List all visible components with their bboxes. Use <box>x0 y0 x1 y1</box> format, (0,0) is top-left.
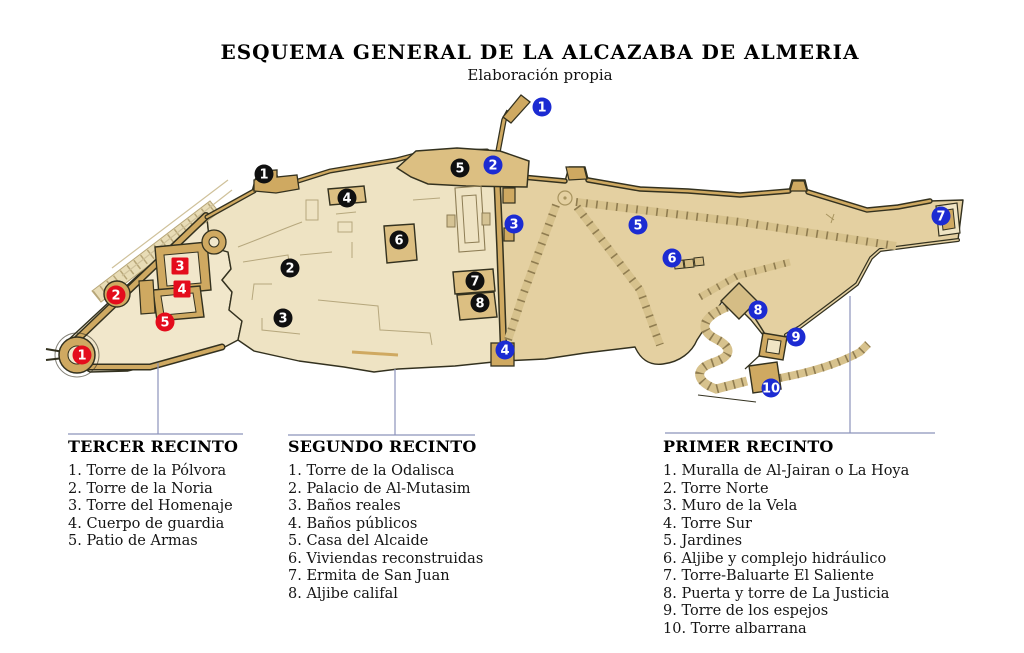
svg-text:2: 2 <box>488 159 497 174</box>
svg-text:3: 3 <box>509 218 518 233</box>
svg-text:10: 10 <box>762 382 780 397</box>
map-marker: 3 <box>274 309 293 328</box>
legend-segundo-recinto: SEGUNDO RECINTO 1. Torre de la Odalisca2… <box>288 437 548 603</box>
legend-primer-recinto: PRIMER RECINTO 1. Muralla de Al-Jairan o… <box>663 437 963 638</box>
map-marker: 3 <box>505 215 524 234</box>
legend-item: 8. Puerta y torre de La Justicia <box>663 586 963 604</box>
svg-text:1: 1 <box>77 349 86 364</box>
map-marker: 7 <box>466 272 485 291</box>
legend-segundo-items: 1. Torre de la Odalisca2. Palacio de Al-… <box>288 463 548 603</box>
map-marker: 2 <box>107 286 126 305</box>
map-primer-recinto-area <box>497 159 963 364</box>
legend-primer-items: 1. Muralla de Al-Jairan o La Hoya2. Torr… <box>663 463 963 638</box>
legend-item: 3. Muro de la Vela <box>663 498 963 516</box>
svg-text:1: 1 <box>537 101 546 116</box>
svg-text:2: 2 <box>111 289 120 304</box>
map-marker: 6 <box>390 231 409 250</box>
svg-text:4: 4 <box>342 192 351 207</box>
svg-text:4: 4 <box>177 283 186 298</box>
map-marker: 3 <box>172 258 189 275</box>
legend-primer-title: PRIMER RECINTO <box>663 437 963 456</box>
map-marker: 1 <box>255 165 274 184</box>
map-marker: 5 <box>156 313 175 332</box>
map-marker: 5 <box>629 216 648 235</box>
map-marker: 8 <box>749 301 768 320</box>
svg-text:7: 7 <box>936 210 945 225</box>
legend-item: 2. Torre Norte <box>663 481 963 499</box>
map-marker: 5 <box>451 159 470 178</box>
svg-text:5: 5 <box>455 162 464 177</box>
svg-text:5: 5 <box>633 219 642 234</box>
svg-text:6: 6 <box>667 252 676 267</box>
map-marker: 7 <box>932 207 951 226</box>
legend-item: 4. Baños públicos <box>288 516 548 534</box>
legend-item: 6. Viviendas reconstruidas <box>288 551 548 569</box>
legend-item: 3. Baños reales <box>288 498 548 516</box>
svg-text:7: 7 <box>470 275 479 290</box>
legend-item: 2. Palacio de Al-Mutasim <box>288 481 548 499</box>
map-marker: 8 <box>471 294 490 313</box>
svg-text:3: 3 <box>278 312 287 327</box>
map-marker: 1 <box>533 98 552 117</box>
legend-item: 1. Torre de la Odalisca <box>288 463 548 481</box>
svg-text:2: 2 <box>285 262 294 277</box>
svg-text:5: 5 <box>160 316 169 331</box>
legend-item: 5. Casa del Alcaide <box>288 533 548 551</box>
svg-text:8: 8 <box>475 297 484 312</box>
page: ESQUEMA GENERAL DE LA ALCAZABA DE ALMERI… <box>0 0 1024 653</box>
svg-text:1: 1 <box>259 168 268 183</box>
svg-text:8: 8 <box>753 304 762 319</box>
legend-item: 7. Ermita de San Juan <box>288 568 548 586</box>
map-marker: 4 <box>496 341 515 360</box>
map-marker: 6 <box>663 249 682 268</box>
map-marker: 10 <box>762 379 781 398</box>
legend-item: 10. Torre albarrana <box>663 621 963 639</box>
map-marker: 2 <box>484 156 503 175</box>
legend-segundo-title: SEGUNDO RECINTO <box>288 437 548 456</box>
svg-text:6: 6 <box>394 234 403 249</box>
map-marker: 4 <box>174 281 191 298</box>
legend-item: 9. Torre de los espejos <box>663 603 963 621</box>
map-marker: 9 <box>787 328 806 347</box>
muralla-al-jairan <box>497 95 530 157</box>
map-marker: 1 <box>73 346 92 365</box>
svg-text:9: 9 <box>791 331 800 346</box>
map-marker: 2 <box>281 259 300 278</box>
legend-item: 6. Aljibe y complejo hidráulico <box>663 551 963 569</box>
legend-item: 5. Jardines <box>663 533 963 551</box>
legend-item: 1. Muralla de Al-Jairan o La Hoya <box>663 463 963 481</box>
legend-item: 8. Aljibe califal <box>288 586 548 604</box>
map-marker: 4 <box>338 189 357 208</box>
legend-item: 7. Torre-Baluarte El Saliente <box>663 568 963 586</box>
svg-text:4: 4 <box>500 344 509 359</box>
legend-item: 4. Torre Sur <box>663 516 963 534</box>
svg-text:3: 3 <box>175 260 184 275</box>
